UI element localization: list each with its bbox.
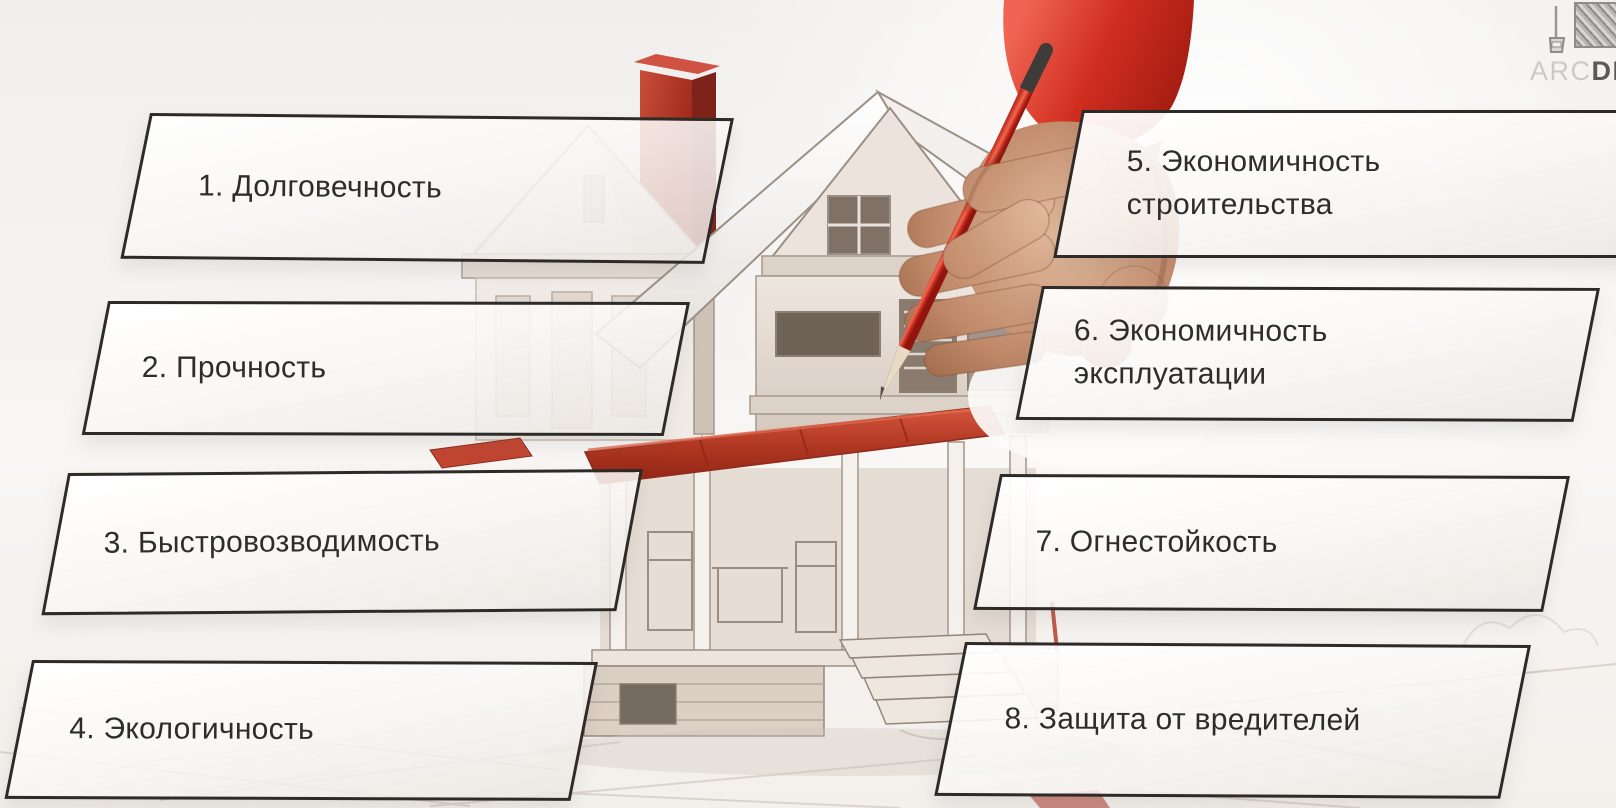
brand-name: ARCDE bbox=[1530, 56, 1616, 87]
feature-box-8-label: 8. Защита от вредителей bbox=[953, 698, 1361, 743]
feature-box-1-label: 1. Долговечность bbox=[138, 165, 442, 210]
feature-box-4-label: 4. Экологичность bbox=[21, 708, 314, 752]
infographic-canvas: ARCDE 1. Долговечность 2. Прочность 3. Б… bbox=[0, 0, 1616, 808]
feature-box-4: 4. Экологичность bbox=[4, 660, 598, 801]
feature-box-3-label: 3. Быстровозводимость bbox=[58, 520, 441, 565]
feature-box-5: 5. Экономичностьстроительства bbox=[1053, 110, 1616, 258]
feature-box-3: 3. Быстровозводимость bbox=[41, 469, 643, 615]
feature-box-7-label: 7. Огнестойкость bbox=[989, 521, 1277, 565]
feature-box-5-label: 5. Экономичностьстроительства bbox=[1071, 141, 1381, 226]
brand-name-dark: DE bbox=[1591, 56, 1616, 86]
brand-logo-icon bbox=[1574, 2, 1616, 48]
feature-box-2-label: 2. Прочность bbox=[98, 347, 327, 390]
feature-box-1: 1. Долговечность bbox=[120, 113, 734, 264]
feature-box-7: 7. Огнестойкость bbox=[973, 474, 1570, 612]
drafting-lamp-icon bbox=[1546, 4, 1570, 56]
feature-box-2: 2. Прочность bbox=[82, 301, 690, 436]
feature-box-6: 6. Экономичностьэксплуатации bbox=[1015, 286, 1600, 422]
brand-name-light: ARC bbox=[1530, 56, 1592, 86]
feature-box-6-label: 6. Экономичностьэксплуатации bbox=[1032, 310, 1328, 396]
feature-box-8: 8. Защита от вредителей bbox=[934, 642, 1531, 799]
brand-watermark: ARCDE bbox=[1498, 0, 1616, 96]
